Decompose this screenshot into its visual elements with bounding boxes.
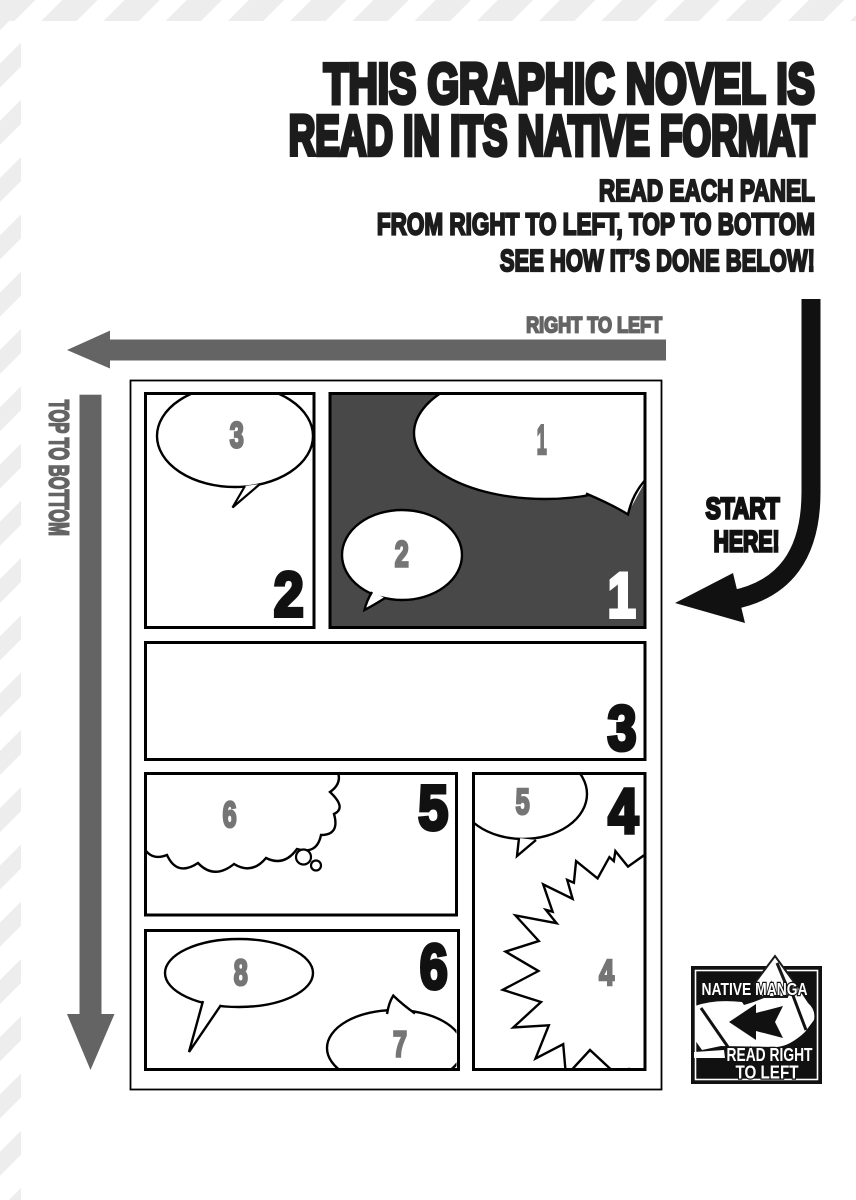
svg-text:FROM RIGHT TO LEFT, TOP TO BOT: FROM RIGHT TO LEFT, TOP TO BOTTOM <box>377 207 815 242</box>
svg-text:5: 5 <box>516 781 530 822</box>
svg-text:READ EACH PANEL: READ EACH PANEL <box>599 173 815 208</box>
svg-text:4: 4 <box>608 777 638 847</box>
svg-text:NATIVE MANGA: NATIVE MANGA <box>702 979 808 999</box>
svg-text:3: 3 <box>608 694 637 764</box>
svg-text:5: 5 <box>418 774 448 844</box>
svg-text:2: 2 <box>274 560 304 630</box>
svg-text:SEE HOW IT’S DONE BELOW!: SEE HOW IT’S DONE BELOW! <box>500 243 815 278</box>
svg-text:6: 6 <box>420 932 448 1002</box>
svg-text:START: START <box>706 492 780 525</box>
svg-text:TOP TO BOTTOM: TOP TO BOTTOM <box>44 400 75 536</box>
svg-text:2: 2 <box>395 534 409 575</box>
svg-text:6: 6 <box>223 794 237 835</box>
svg-text:8: 8 <box>234 952 248 993</box>
svg-text:4: 4 <box>599 952 614 993</box>
svg-text:7: 7 <box>393 1024 407 1065</box>
svg-text:1: 1 <box>608 561 636 631</box>
svg-text:TO LEFT: TO LEFT <box>736 1063 799 1083</box>
svg-text:3: 3 <box>230 415 244 456</box>
svg-text:1: 1 <box>537 416 547 463</box>
svg-text:HERE!: HERE! <box>714 526 780 559</box>
svg-text:RIGHT TO LEFT: RIGHT TO LEFT <box>526 312 662 337</box>
svg-text:READ IN ITS NATIVE FORMAT: READ IN ITS NATIVE FORMAT <box>289 104 815 168</box>
